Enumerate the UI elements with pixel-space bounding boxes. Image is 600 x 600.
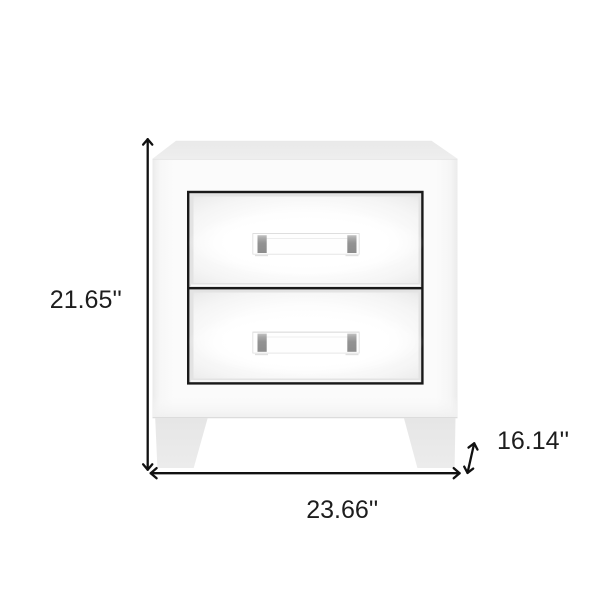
svg-text:16.14'': 16.14'' xyxy=(497,427,569,455)
svg-text:23.66'': 23.66'' xyxy=(306,496,378,524)
svg-text:21.65'': 21.65'' xyxy=(50,286,122,314)
